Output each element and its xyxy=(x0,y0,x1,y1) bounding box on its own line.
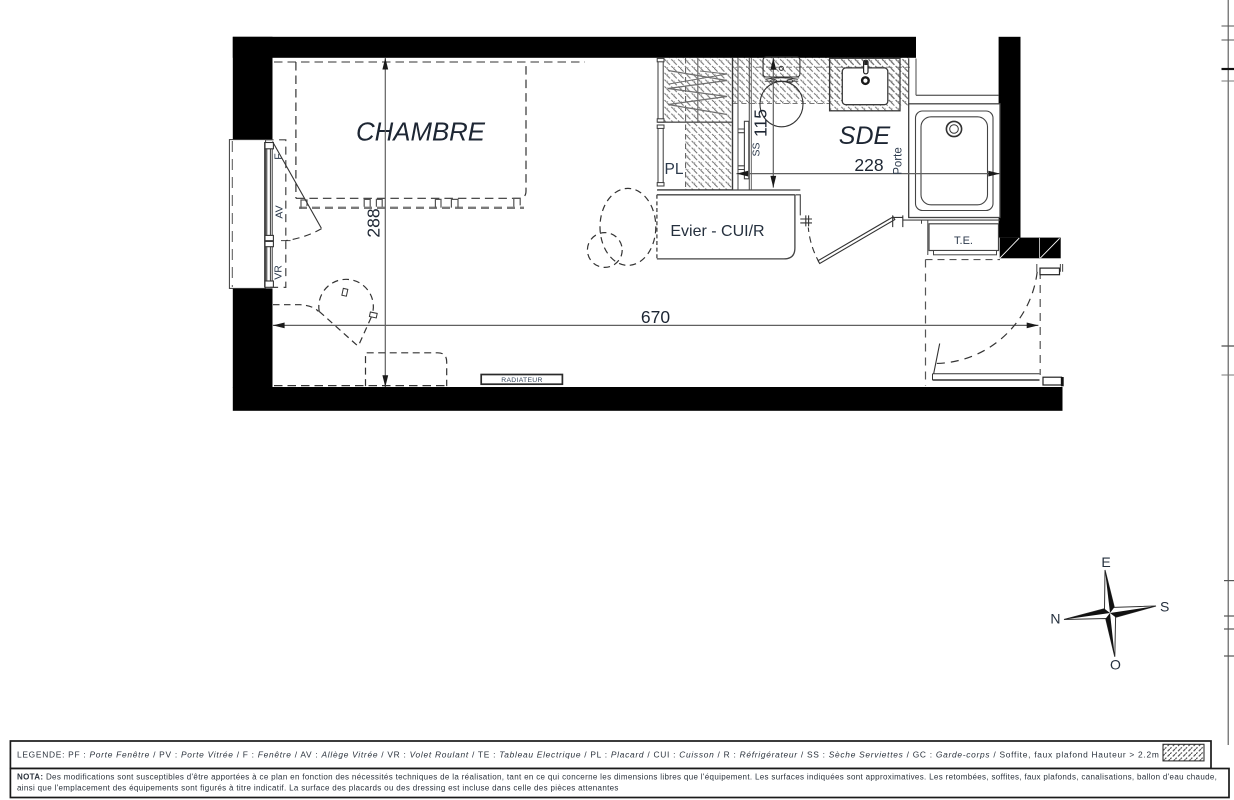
svg-text:228: 228 xyxy=(854,155,883,175)
svg-text:N: N xyxy=(1050,611,1060,627)
svg-text:CHAMBRE: CHAMBRE xyxy=(356,119,486,147)
svg-text:AV: AV xyxy=(274,205,286,218)
svg-text:VR: VR xyxy=(273,265,285,280)
svg-text:PL: PL xyxy=(665,161,684,178)
svg-text:S: S xyxy=(1160,599,1169,615)
svg-text:115: 115 xyxy=(751,109,771,137)
svg-text:Porte: Porte xyxy=(893,147,905,175)
svg-text:Evier - CUI/R: Evier - CUI/R xyxy=(670,223,764,240)
svg-text:E: E xyxy=(1101,554,1110,570)
svg-text:O: O xyxy=(1110,657,1121,673)
svg-text:T.E.: T.E. xyxy=(954,235,973,247)
svg-text:RADIATEUR: RADIATEUR xyxy=(501,377,542,384)
svg-text:SDE: SDE xyxy=(839,122,891,150)
svg-text:288: 288 xyxy=(364,208,384,237)
svg-text:LEGENDE: PF : Porte Fenêtre /: LEGENDE: PF : Porte Fenêtre / PV : Porte… xyxy=(17,750,1160,760)
svg-text:SS: SS xyxy=(751,142,763,156)
svg-text:670: 670 xyxy=(641,307,670,327)
svg-text:ainsi que l'emplacement des éq: ainsi que l'emplacement des équipements … xyxy=(17,784,619,793)
svg-text:NOTA: Des modifications sont s: NOTA: Des modifications sont susceptible… xyxy=(17,773,1217,782)
